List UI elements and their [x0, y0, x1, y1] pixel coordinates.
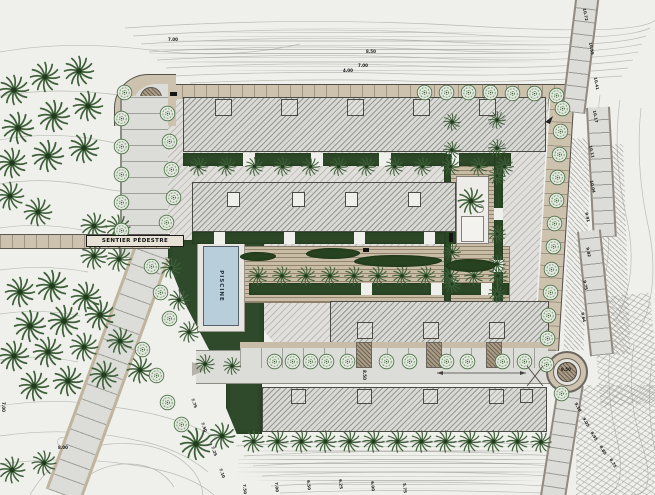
door-marks [170, 92, 553, 252]
site-plan: PISCINE [0, 0, 655, 495]
dimension-arrow [437, 371, 526, 375]
crosswalk-x [527, 366, 543, 386]
overlay-marks [0, 0, 655, 495]
